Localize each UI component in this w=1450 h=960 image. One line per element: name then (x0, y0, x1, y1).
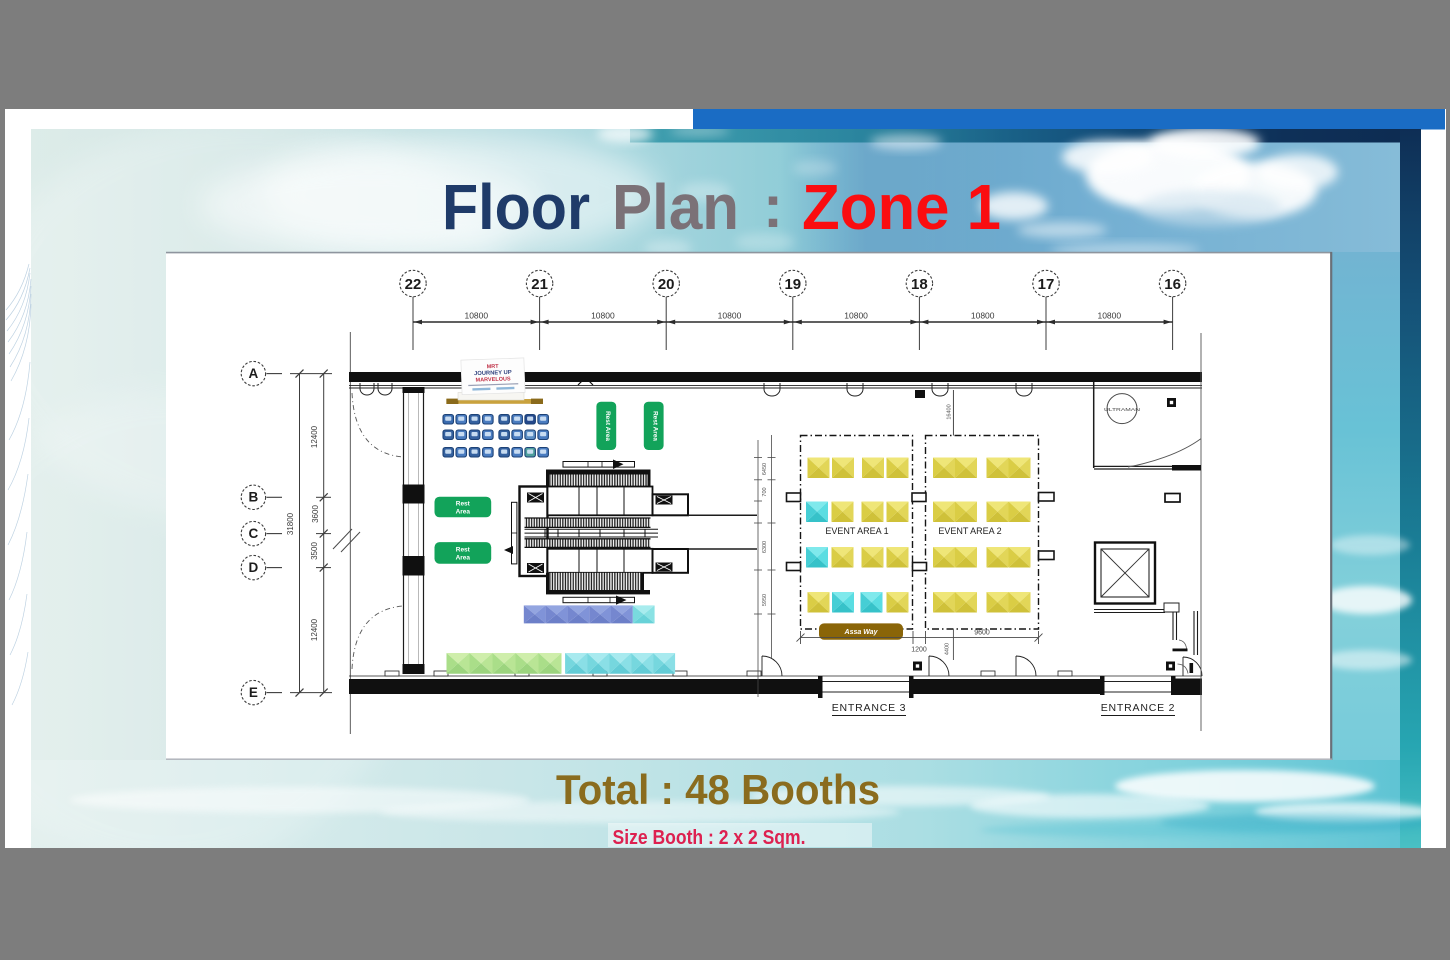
svg-text:A: A (249, 366, 259, 381)
svg-text:ULTRAMAN: ULTRAMAN (1104, 407, 1140, 412)
svg-text:Assa Way: Assa Way (844, 629, 879, 636)
svg-text:Plan: Plan (612, 171, 739, 243)
svg-text:10800: 10800 (464, 311, 488, 321)
svg-text:1200: 1200 (911, 647, 927, 654)
svg-text:Area: Area (456, 554, 471, 561)
svg-text:3500: 3500 (310, 542, 319, 560)
svg-text:EVENT AREA 1: EVENT AREA 1 (825, 526, 888, 536)
svg-text:Rest: Rest (456, 501, 471, 508)
svg-text:16400: 16400 (947, 404, 953, 419)
svg-text:22: 22 (405, 276, 422, 293)
svg-text:31800: 31800 (286, 512, 295, 535)
svg-text:12400: 12400 (310, 425, 319, 448)
svg-text:Size Booth : 2 x 2 Sqm.: Size Booth : 2 x 2 Sqm. (613, 827, 806, 849)
svg-text:19: 19 (784, 276, 801, 293)
svg-text:EVENT AREA 2: EVENT AREA 2 (938, 526, 1001, 536)
svg-text:10800: 10800 (971, 311, 995, 321)
svg-text:E: E (249, 685, 258, 700)
svg-text:MARVELOUS: MARVELOUS (475, 376, 511, 383)
svg-text:3600: 3600 (311, 505, 320, 523)
svg-text:4400: 4400 (945, 643, 951, 655)
svg-text::: : (763, 173, 783, 240)
svg-text:18: 18 (911, 276, 928, 293)
svg-text:10800: 10800 (844, 311, 868, 321)
svg-text:Rest: Rest (456, 546, 471, 553)
svg-text:ENTRANCE 3: ENTRANCE 3 (832, 702, 907, 714)
svg-text:5950: 5950 (762, 594, 768, 606)
svg-text:21: 21 (531, 276, 548, 293)
svg-text:Rest Area: Rest Area (652, 411, 659, 441)
svg-text:C: C (249, 526, 259, 541)
svg-text:Area: Area (456, 509, 471, 516)
svg-text:10800: 10800 (1097, 311, 1121, 321)
svg-text:20: 20 (658, 276, 675, 293)
svg-text:B: B (249, 490, 259, 505)
svg-text:Rest Area: Rest Area (604, 411, 611, 441)
svg-text:Floor: Floor (442, 171, 590, 243)
svg-text:12400: 12400 (310, 618, 319, 641)
svg-text:9600: 9600 (974, 630, 990, 637)
svg-text:10800: 10800 (718, 311, 742, 321)
svg-text:6450: 6450 (762, 463, 768, 475)
svg-text:MRT: MRT (487, 364, 500, 370)
svg-text:10800: 10800 (591, 311, 615, 321)
svg-text:Zone 1: Zone 1 (802, 171, 1001, 243)
svg-text:ENTRANCE 2: ENTRANCE 2 (1101, 702, 1176, 714)
svg-text:17: 17 (1038, 276, 1055, 293)
svg-text:6300: 6300 (762, 541, 768, 553)
svg-text:Total : 48 Booths: Total : 48 Booths (556, 766, 880, 813)
svg-text:700: 700 (762, 487, 768, 496)
svg-text:D: D (249, 560, 259, 575)
svg-text:16: 16 (1164, 276, 1181, 293)
